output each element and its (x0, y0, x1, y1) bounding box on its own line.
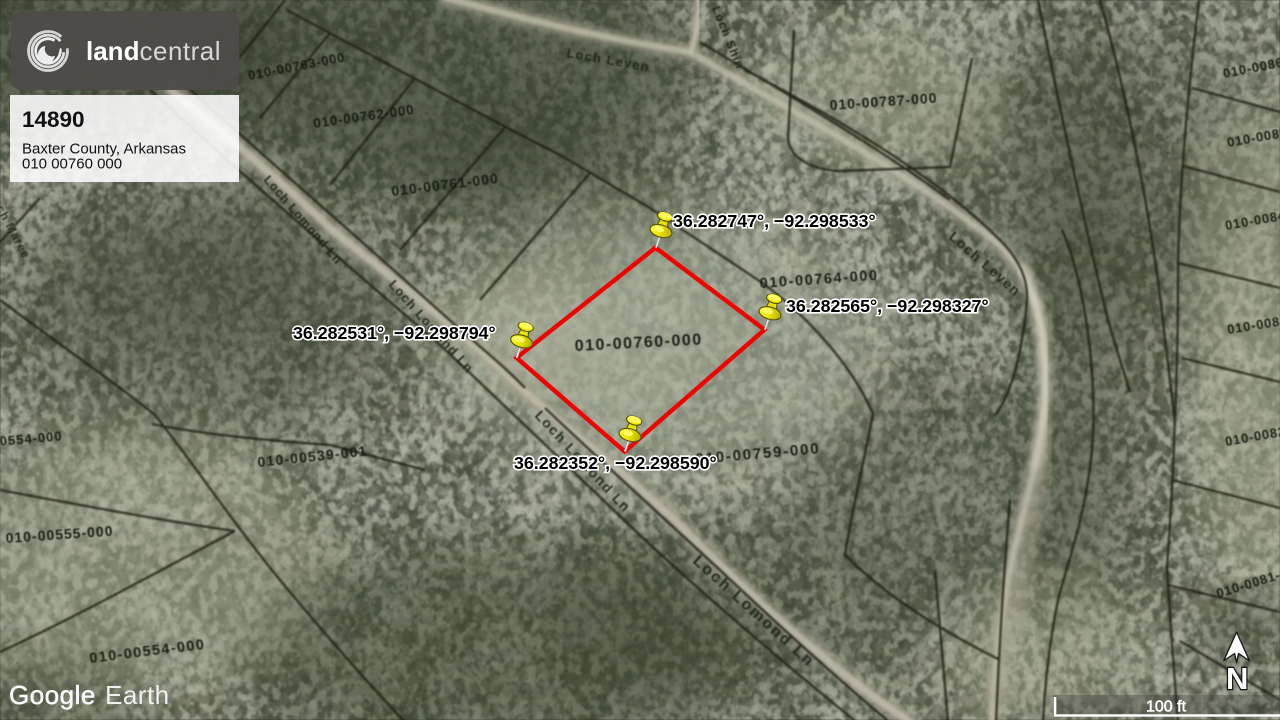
svg-text:100 ft: 100 ft (1146, 699, 1187, 716)
svg-text:36.282565°, −92.298327°: 36.282565°, −92.298327° (786, 296, 989, 316)
svg-text:14890: 14890 (22, 107, 85, 132)
svg-text:36.282531°, −92.298794°: 36.282531°, −92.298794° (293, 323, 496, 343)
svg-text:010 00760 000: 010 00760 000 (22, 156, 122, 173)
svg-text:land: land (86, 36, 139, 66)
svg-text:Earth: Earth (105, 680, 170, 710)
svg-text:Google: Google (9, 680, 96, 710)
svg-text:central: central (140, 36, 222, 66)
svg-text:36.282352°, −92.298590°: 36.282352°, −92.298590° (514, 453, 717, 473)
svg-text:N: N (1226, 661, 1248, 696)
svg-text:36.282747°, −92.298533°: 36.282747°, −92.298533° (673, 211, 876, 231)
